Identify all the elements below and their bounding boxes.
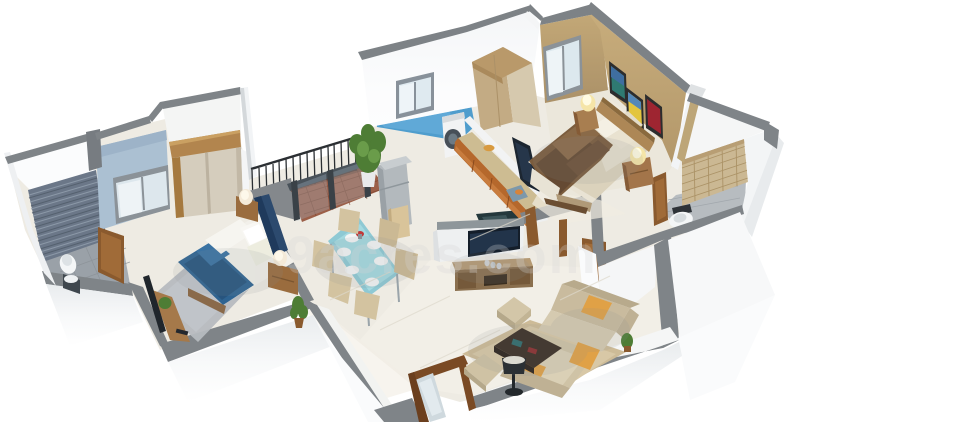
svg-text:9acres.com: 9acres.com [286,226,598,285]
